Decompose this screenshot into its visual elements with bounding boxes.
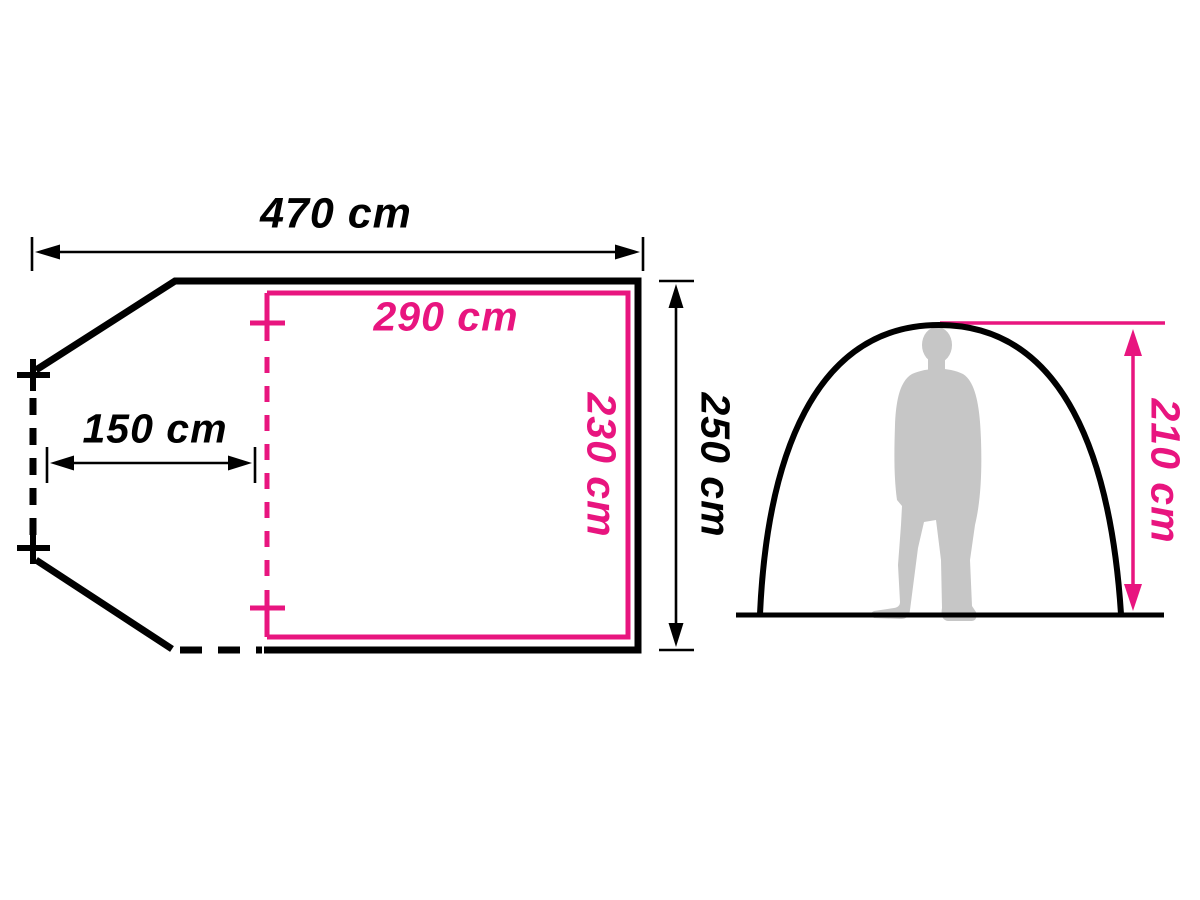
inner-tent-rect xyxy=(267,293,628,637)
dimension-extension-ticks xyxy=(47,447,255,483)
dimension-peak-height xyxy=(1124,329,1142,611)
label-total-depth: 250 cm xyxy=(695,392,736,537)
arrowhead-down-icon xyxy=(669,623,684,647)
dimension-vestibule-depth xyxy=(47,447,255,483)
label-vestibule-depth: 150 cm xyxy=(82,409,227,450)
label-total-width: 470 cm xyxy=(260,193,412,236)
silhouette-body xyxy=(871,369,981,621)
dimension-total-depth xyxy=(659,281,694,650)
arrowhead-left-icon xyxy=(50,456,74,471)
side-view xyxy=(736,323,1165,621)
vestibule-bottom-diagonal xyxy=(36,560,172,649)
tent-footprint-outline xyxy=(36,281,638,650)
label-inner-width: 290 cm xyxy=(373,297,518,338)
arrowhead-right-icon xyxy=(615,245,640,260)
label-inner-depth: 230 cm xyxy=(581,392,622,537)
arrowhead-down-icon xyxy=(1124,584,1142,611)
human-silhouette xyxy=(871,327,981,621)
dimension-total-width xyxy=(32,237,643,271)
dimension-extension-ticks xyxy=(32,237,643,271)
label-peak-height: 210 cm xyxy=(1145,398,1186,543)
arrowhead-up-icon xyxy=(1124,329,1142,356)
arrowhead-right-icon xyxy=(228,456,252,471)
peg-cross-bottom-icon xyxy=(17,532,50,564)
tent-dimensions-diagram: 470 cm 150 cm 290 cm 230 cm 250 cm 210 c… xyxy=(0,0,1200,900)
arrowhead-left-icon xyxy=(35,245,60,260)
arrowhead-up-icon xyxy=(669,284,684,308)
